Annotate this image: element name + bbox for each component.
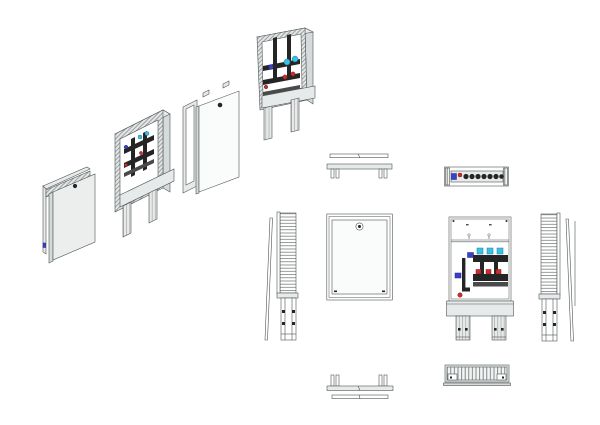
door-edge — [265, 218, 273, 340]
inlet-valve-blue — [269, 65, 274, 70]
view-iso-cabinet-closed — [40, 156, 102, 264]
inlet-valve-blue — [452, 174, 457, 180]
supply-manifold-bar — [473, 255, 508, 262]
cabinet-legs — [456, 316, 506, 340]
supply-valve-cyan — [138, 135, 142, 139]
view-iso-cabinet-open — [110, 97, 180, 239]
view-bottom-open — [443, 364, 511, 388]
door-lock-icon — [218, 103, 223, 108]
door-edge — [566, 219, 574, 341]
door-lock-icon — [356, 223, 363, 230]
cabinet-door — [196, 91, 239, 194]
view-front-closed — [326, 213, 393, 303]
return-valve-red — [264, 85, 268, 89]
supply-valve-cyan — [497, 248, 503, 254]
view-iso-door-panel — [178, 80, 244, 202]
supply-valve-cyan — [487, 248, 493, 254]
rail-feet — [331, 169, 387, 178]
side-rail-rungs — [280, 213, 296, 293]
view-side-left — [262, 210, 302, 342]
cabinet-door — [332, 220, 387, 294]
view-bottom-closed — [326, 374, 394, 400]
inlet-valve-blue — [124, 145, 128, 149]
return-valve-red — [458, 173, 462, 177]
corner-block — [497, 374, 506, 380]
rail-flange — [557, 213, 560, 295]
view-top-closed — [325, 150, 395, 180]
return-valve-red — [496, 270, 501, 275]
supply-valve-cyan — [145, 132, 149, 136]
bottom-access-panel — [447, 301, 514, 316]
supply-valve-cyan — [292, 56, 298, 62]
corner-block — [448, 374, 457, 380]
base-strip — [444, 383, 511, 386]
door-lock-icon — [73, 184, 77, 188]
side-rail — [504, 168, 508, 185]
side-rail — [446, 168, 450, 185]
supply-valve-cyan — [477, 248, 483, 254]
supply-stub — [43, 243, 46, 248]
cabinet-top-rail — [327, 164, 392, 169]
rail-bracket — [277, 293, 298, 298]
door-hinge-mark — [382, 291, 385, 293]
return-valve-red — [283, 75, 287, 79]
return-valve-red — [458, 293, 462, 297]
rail-flange — [277, 212, 280, 294]
view-iso-cabinet-open-right — [246, 20, 320, 144]
side-rail-rungs — [541, 214, 557, 294]
return-valve-red — [291, 72, 295, 76]
cabinet-leg — [281, 298, 296, 340]
inlet-valve-blue — [455, 273, 461, 278]
rail-bracket — [539, 294, 560, 299]
return-valve-red — [124, 163, 127, 166]
rail-feet — [331, 375, 387, 386]
view-front-open — [446, 215, 514, 342]
return-valve-red — [486, 270, 491, 275]
return-valve-red — [139, 151, 142, 154]
view-top-open — [443, 163, 511, 190]
drawing-canvas — [0, 0, 600, 425]
return-manifold-bar — [473, 274, 508, 281]
view-side-right — [537, 211, 577, 344]
door-hinge-mark — [334, 291, 337, 293]
inlet-valve-blue — [468, 253, 474, 258]
return-valve-red — [476, 270, 481, 275]
supply-valve-cyan — [284, 59, 290, 65]
cabinet-leg — [542, 299, 557, 341]
